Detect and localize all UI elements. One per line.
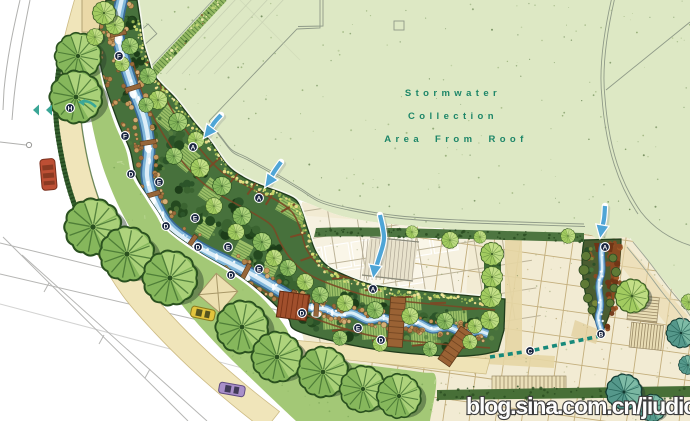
svg-text:D: D [164,223,169,230]
svg-text:E: E [157,179,162,186]
svg-text:A: A [371,286,376,293]
svg-text:C: C [528,348,533,355]
svg-text:A: A [603,244,608,251]
svg-text:E: E [193,215,198,222]
svg-text:F: F [123,133,127,140]
svg-text:E: E [226,244,231,251]
svg-text:Collection: Collection [408,111,498,122]
svg-text:H: H [68,105,73,112]
svg-text:A: A [191,144,196,151]
svg-text:E: E [356,325,361,332]
svg-text:D: D [229,272,234,279]
svg-text:B: B [599,331,604,338]
svg-text:D: D [129,171,134,178]
svg-text:Stormwater: Stormwater [405,88,501,99]
svg-text:Area From Roof: Area From Roof [384,134,527,145]
svg-text:F: F [117,53,121,60]
svg-text:D: D [379,337,384,344]
svg-text:A: A [257,195,262,202]
svg-text:D: D [300,310,305,317]
svg-text:E: E [257,266,262,273]
svg-text:blog.sina.com.cn/jiudic: blog.sina.com.cn/jiudic [466,393,690,419]
svg-text:D: D [196,244,201,251]
